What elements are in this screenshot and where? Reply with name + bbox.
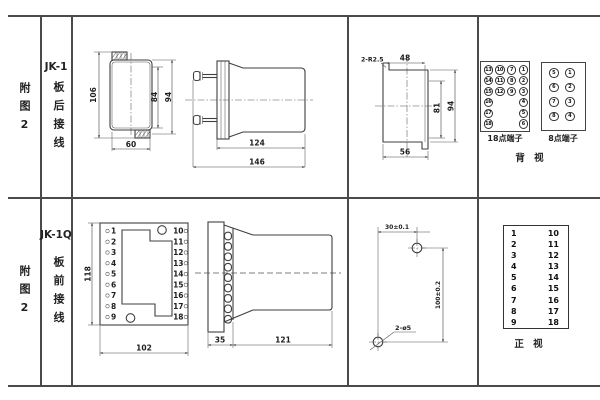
terminal-circle: 15 [484, 87, 494, 97]
terminal-number: 1 [511, 228, 517, 239]
front-view-label: 正 视 [495, 336, 565, 350]
terminal-circle: 3 [519, 87, 529, 97]
terminal-dot [184, 283, 187, 286]
terminal-dot [106, 315, 109, 318]
terminal-number: 6 [511, 283, 517, 294]
terminal-number: 18 [548, 317, 559, 328]
terminal-number: 5 [511, 272, 517, 283]
terminal-number: 17 [173, 302, 183, 311]
front-table-left: 123456789 [511, 228, 517, 328]
mounting-hole-bottom [126, 314, 135, 323]
relay-side-view-drawing: 124 146 [185, 50, 315, 170]
terminal-18-box: 131071141182151293164175186 [480, 61, 530, 132]
terminal-18-label: 18点端子 [476, 133, 534, 144]
terminal-dot [184, 294, 187, 297]
terminal-circle: 6 [519, 119, 529, 129]
terminal-circle: 1 [565, 68, 575, 78]
dimension-lines [383, 63, 455, 157]
terminal-circle: 2 [519, 76, 529, 86]
terminal-dot [106, 283, 109, 286]
terminal-number: 4 [511, 261, 517, 272]
terminal-number: 10 [173, 227, 183, 236]
terminal-number: 13 [173, 259, 183, 268]
extension-lines [208, 311, 332, 348]
front-table-right: 101112131415161718 [548, 228, 559, 328]
dim-100: 100±0.2 [435, 281, 442, 309]
dim-94: 94 [164, 92, 173, 102]
row2-figure-label: 附图2 [16, 265, 32, 321]
terminal-number: 12 [173, 248, 183, 257]
terminal-circle: 4 [519, 98, 529, 108]
dim-121: 121 [275, 336, 291, 345]
terminal-number: 3 [111, 248, 116, 257]
terminal-number: 11 [548, 239, 559, 250]
front-wiring-side-drawing: 35 121 [195, 215, 345, 360]
dim-106: 106 [89, 87, 98, 103]
terminal-dot [106, 272, 109, 275]
screw-bump [225, 253, 232, 261]
terminal-circle: 17 [484, 109, 494, 119]
terminal-dot [106, 229, 109, 232]
relay-body-outline [122, 230, 172, 316]
terminal-dot [184, 229, 187, 232]
terminal-circle: 8 [549, 112, 559, 122]
mounting-hole-top [158, 226, 167, 235]
terminal-circle: 4 [565, 112, 575, 122]
note-2-o5: 2-ø5 [395, 324, 412, 332]
terminal-screw-stack [225, 232, 232, 323]
terminal-number: 9 [511, 317, 517, 328]
dim-30: 30±0.1 [385, 224, 409, 231]
terminal-circle: 13 [484, 65, 494, 75]
dim-60: 60 [126, 140, 136, 149]
terminal-number: 14 [548, 272, 559, 283]
terminal-number: 8 [511, 306, 517, 317]
terminal-number: 5 [111, 270, 116, 279]
terminal-8-label: 8点端子 [537, 133, 589, 144]
terminal-dot [106, 294, 109, 297]
panel-left-terminals: 123456789 [106, 227, 116, 322]
terminal-number: 13 [548, 261, 559, 272]
terminal-number: 11 [173, 237, 183, 246]
terminal-number: 14 [173, 270, 183, 279]
terminal-number: 7 [111, 291, 116, 300]
terminal-number: 8 [111, 302, 116, 311]
screw-bump [225, 295, 232, 303]
terminal-number: 15 [548, 283, 559, 294]
dim-146: 146 [249, 158, 265, 167]
terminal-circle: 2 [565, 83, 575, 93]
drilling-plan-drawing: 30±0.1 100±0.2 2-ø5 [360, 215, 470, 355]
terminal-number: 17 [548, 306, 559, 317]
terminal-circle: 18 [484, 119, 494, 129]
hole-centerlines [369, 239, 426, 351]
relay-body-outline [224, 225, 332, 322]
dim-94: 94 [447, 101, 456, 111]
drawing-sheet: 附图2 JK-1 板后接线 附图2 JK-1Q 板前接线 [0, 0, 600, 400]
screw-bump [225, 284, 232, 292]
dim-102: 102 [136, 344, 152, 353]
terminal-number: 16 [173, 291, 183, 300]
front-wiring-panel-drawing: 123456789 101112131415161718 118 102 [85, 215, 200, 360]
screw-bump [225, 232, 232, 240]
panel-cutout-drawing: 2-R2.5 48 81 94 56 [355, 45, 470, 165]
table-line-v4 [477, 15, 479, 387]
terminal-number: 2 [111, 237, 116, 246]
terminal-dot [106, 251, 109, 254]
dim-56: 56 [400, 148, 410, 157]
row1-model-label: JK-1 [41, 61, 71, 73]
terminal-dot [184, 315, 187, 318]
rear-view-label: 背 视 [500, 150, 562, 164]
relay-front-view-drawing: 106 84 94 60 [85, 40, 185, 170]
terminal-number: 1 [111, 227, 116, 236]
terminal-circle: 11 [495, 76, 505, 86]
table-line-top [8, 15, 600, 17]
terminal-number: 10 [548, 228, 559, 239]
table-line-v2 [71, 15, 73, 387]
screw-bump [225, 243, 232, 251]
terminal-circle: 14 [484, 76, 494, 86]
terminal-circle: 8 [507, 76, 517, 86]
terminal-dot [184, 240, 187, 243]
terminal-circle: 7 [549, 97, 559, 107]
terminal-circle: 5 [549, 68, 559, 78]
dim-35: 35 [215, 336, 225, 345]
terminal-number: 16 [548, 295, 559, 306]
terminal-dot [184, 262, 187, 265]
terminal-number: 7 [511, 295, 517, 306]
dim-84: 84 [150, 92, 159, 102]
table-line-middle [8, 197, 600, 199]
terminal-circle: 6 [549, 83, 559, 93]
front-view-table: 123456789 101112131415161718 [503, 225, 569, 329]
note-2-r2.5: 2-R2.5 [361, 57, 384, 64]
row1-figure-label: 附图2 [16, 82, 32, 138]
dim-48: 48 [400, 54, 410, 63]
extension-lines [193, 80, 305, 167]
terminal-screws [194, 72, 218, 125]
terminal-number: 12 [548, 250, 559, 261]
terminal8-grid: 51627384 [542, 63, 585, 121]
front-plate-outline [208, 222, 224, 332]
terminal18-grid: 131071141182151293164175186 [481, 62, 529, 129]
screw-bump [225, 305, 232, 313]
terminal-circle: 7 [507, 65, 517, 75]
terminal-dot [184, 305, 187, 308]
terminal-circle: 5 [519, 109, 529, 119]
row2-wiring-label: 板前接线 [50, 256, 66, 330]
terminal-dot [106, 262, 109, 265]
dim-124: 124 [249, 139, 265, 148]
panel-right-terminals: 101112131415161718 [173, 227, 187, 322]
terminal-circle: 9 [507, 87, 517, 97]
terminal-number: 3 [511, 250, 517, 261]
terminal-circle: 16 [484, 98, 494, 108]
terminal-number: 4 [111, 259, 116, 268]
terminal-dot [106, 240, 109, 243]
terminal-dot [184, 272, 187, 275]
terminal-dot [106, 305, 109, 308]
terminal-circle: 10 [495, 65, 505, 75]
terminal-circle: 12 [495, 87, 505, 97]
terminal-circle: 1 [519, 65, 529, 75]
terminal-number: 15 [173, 280, 183, 289]
terminal-number: 6 [111, 280, 116, 289]
table-line-v3 [347, 15, 349, 387]
dim-81: 81 [433, 103, 442, 113]
screw-bump [225, 274, 232, 282]
terminal-number: 9 [111, 313, 116, 322]
dim-118: 118 [84, 266, 93, 282]
row1-wiring-label: 板后接线 [50, 81, 66, 155]
table-line-bottom [8, 385, 600, 387]
terminal-circle: 3 [565, 97, 575, 107]
row2-model-label: JK-1Q [39, 229, 73, 241]
terminal-number: 18 [173, 313, 183, 322]
terminal-8-box: 51627384 [541, 62, 586, 131]
screw-bump [225, 263, 232, 271]
terminal-number: 2 [511, 239, 517, 250]
terminal-dot [184, 251, 187, 254]
